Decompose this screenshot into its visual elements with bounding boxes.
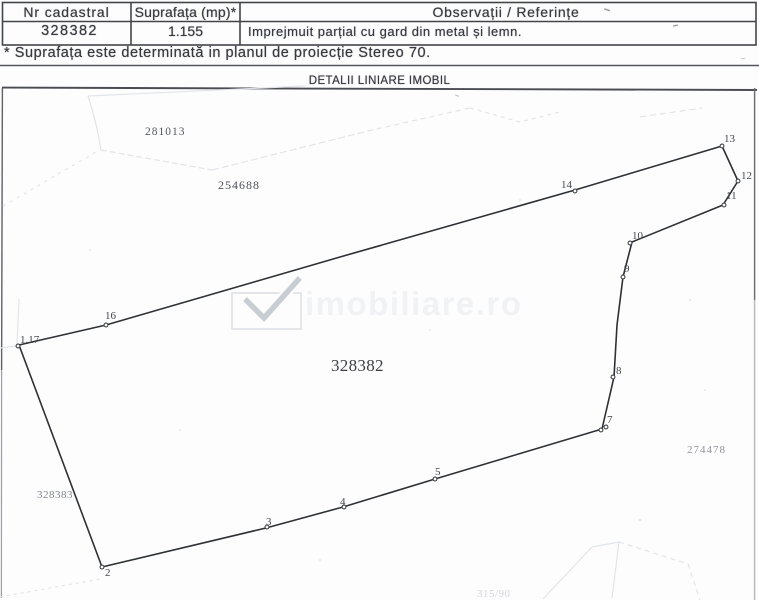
svg-text:8: 8 [616,365,622,377]
svg-text:5: 5 [435,466,441,478]
svg-text:315/90: 315/90 [477,588,511,600]
svg-text:16: 16 [105,310,117,322]
svg-text:11: 11 [726,190,737,202]
svg-text:254688: 254688 [218,178,260,192]
svg-text:3: 3 [266,516,272,528]
svg-text:12: 12 [741,170,752,182]
svg-text:2: 2 [105,567,111,579]
svg-text:281013: 281013 [145,126,186,138]
svg-text:7: 7 [607,414,613,426]
svg-text:1.17: 1.17 [20,334,40,346]
svg-text:9: 9 [624,263,630,275]
svg-text:328382: 328382 [331,356,384,375]
svg-text:4: 4 [340,496,346,508]
svg-text:13: 13 [724,133,736,145]
svg-text:328383: 328383 [37,489,73,501]
svg-text:14: 14 [561,179,573,191]
svg-text:274478: 274478 [687,444,726,456]
svg-text:10: 10 [632,230,644,242]
svg-text:imobiliare.ro: imobiliare.ro [305,285,523,322]
